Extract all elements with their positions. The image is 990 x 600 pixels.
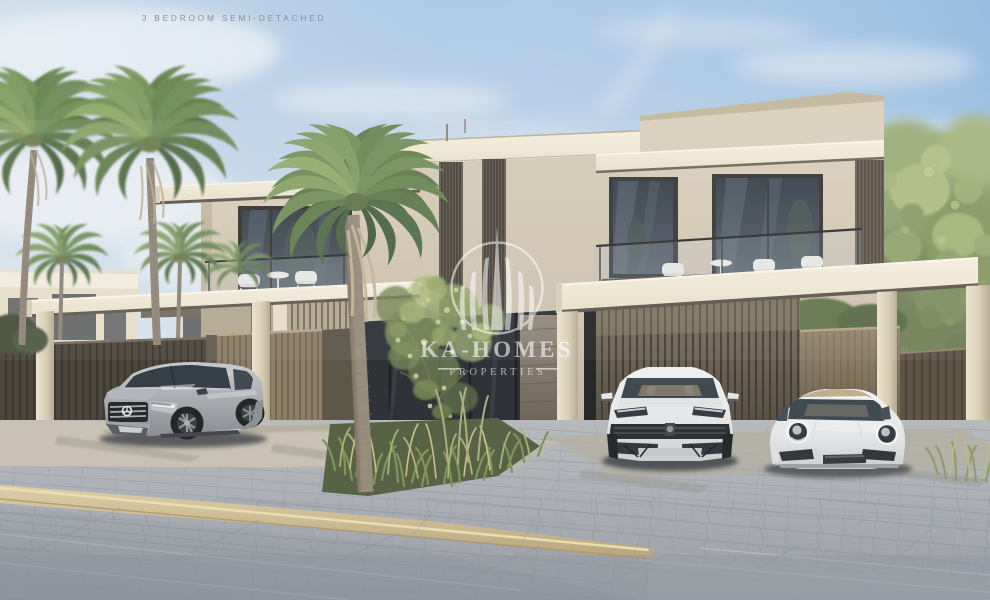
svg-text:PROPERTIES: PROPERTIES: [449, 367, 546, 378]
svg-text:KA-HOMES: KA-HOMES: [420, 337, 573, 362]
svg-text:3 BEDROOM SEMI-DETACHED: 3 BEDROOM SEMI-DETACHED: [142, 13, 327, 23]
